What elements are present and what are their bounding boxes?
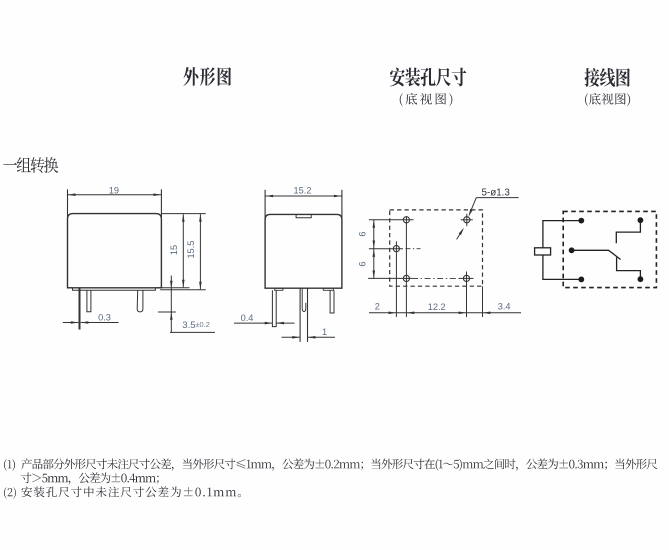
svg-text:2: 2 [375, 302, 380, 312]
svg-text:15.2: 15.2 [294, 186, 312, 196]
svg-text:15.5: 15.5 [186, 241, 196, 259]
svg-text:0.4: 0.4 [241, 313, 254, 323]
svg-text:19: 19 [109, 185, 119, 195]
svg-text:3.5: 3.5 [182, 320, 195, 331]
svg-text:15: 15 [169, 245, 179, 255]
svg-text:3.4: 3.4 [498, 302, 511, 312]
svg-text:1: 1 [322, 327, 327, 337]
svg-text:±0.2: ±0.2 [196, 320, 210, 329]
svg-text:6: 6 [358, 261, 368, 266]
svg-text:5-ø1.3: 5-ø1.3 [482, 187, 511, 198]
svg-text:0.3: 0.3 [98, 312, 111, 322]
svg-text:12.2: 12.2 [428, 302, 446, 312]
svg-text:6: 6 [358, 231, 368, 236]
